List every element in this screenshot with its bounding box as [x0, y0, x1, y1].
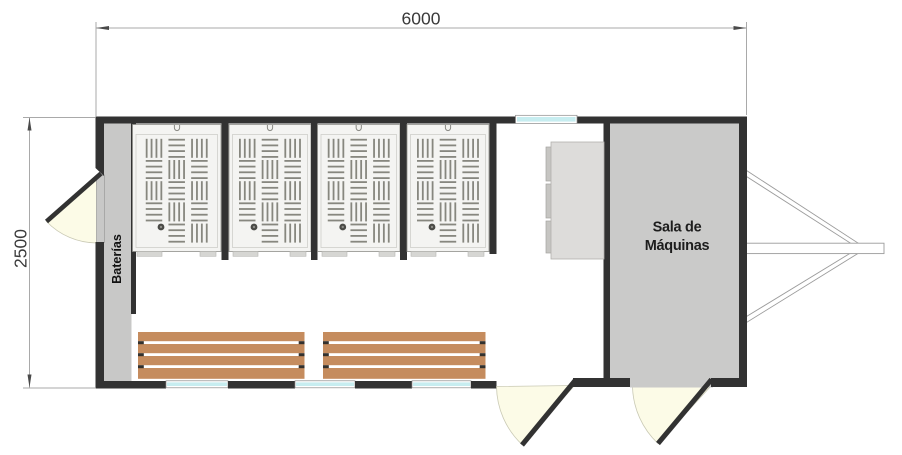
- svg-text:Baterías: Baterías: [110, 234, 124, 284]
- svg-text:6000: 6000: [402, 9, 441, 29]
- svg-text:Sala de: Sala de: [653, 220, 702, 236]
- svg-text:Máquinas: Máquinas: [645, 238, 710, 254]
- svg-text:2500: 2500: [11, 229, 31, 268]
